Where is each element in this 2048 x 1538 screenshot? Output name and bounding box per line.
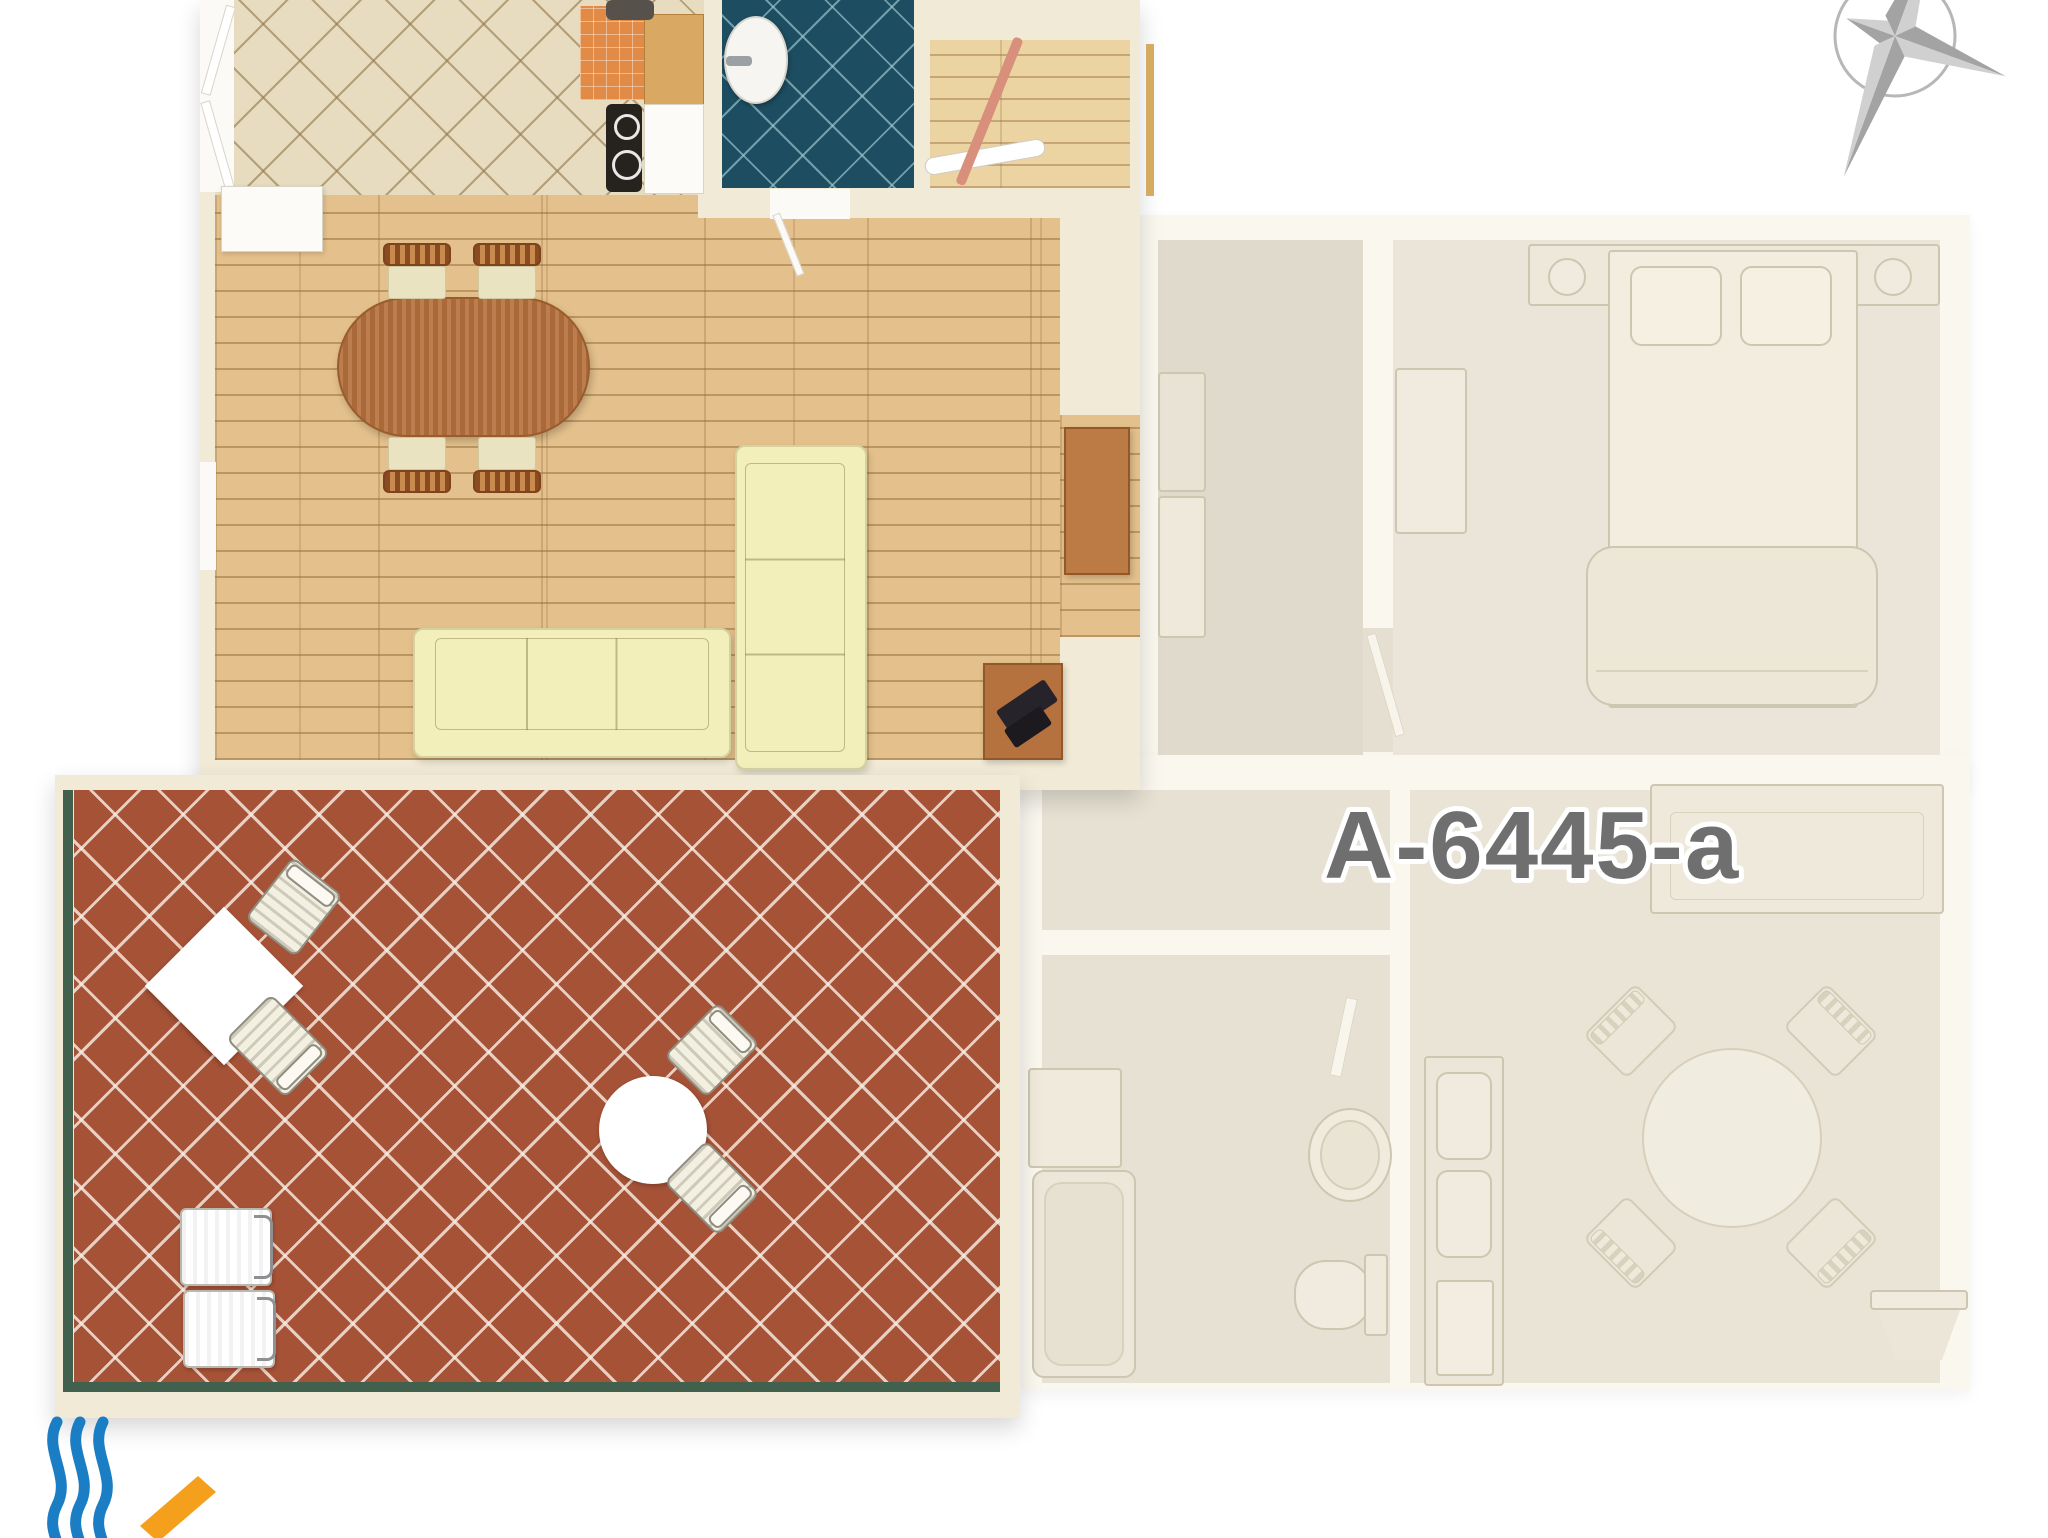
open-door-edge — [1146, 44, 1154, 196]
floor-plan: A-6445-a — [0, 0, 2048, 1538]
burner — [614, 114, 640, 140]
bedside-lamp — [1874, 258, 1912, 296]
faucet — [726, 56, 752, 66]
plant-stand-base — [1878, 1310, 1960, 1360]
bedside-lamp — [1548, 258, 1586, 296]
duvet-fold-line — [1596, 670, 1868, 672]
kitchenette-sink — [1436, 1072, 1492, 1160]
bathroom-door-opening — [770, 189, 850, 219]
stacked-chair — [183, 1290, 275, 1368]
kitchen-counter-wood — [644, 14, 704, 110]
sofa-horizontal — [413, 628, 731, 758]
faded-round-table — [1642, 1048, 1822, 1228]
unit-label: A-6445-a — [1318, 786, 1798, 910]
dining-chair — [383, 243, 451, 299]
orange-stripe-icon — [140, 1476, 216, 1538]
fridge — [221, 186, 323, 252]
chair-seat — [478, 437, 536, 470]
wardrobe — [1395, 368, 1467, 534]
sideboard — [1064, 427, 1130, 575]
dining-table — [337, 297, 590, 437]
duvet — [1586, 546, 1878, 706]
toilet-tank — [1364, 1254, 1388, 1336]
chair-seat — [388, 266, 446, 299]
kitchen-sink-unit — [606, 0, 654, 20]
dining-chair — [473, 437, 541, 493]
kitchen-counter-tiles — [580, 6, 646, 100]
sofa-cushions — [745, 463, 845, 752]
kitchenette-appliance — [1436, 1280, 1494, 1376]
burner — [612, 150, 642, 180]
chair-back — [473, 243, 541, 266]
chair-seat — [388, 437, 446, 470]
sofa-vertical — [735, 445, 867, 770]
bathtub — [1032, 1170, 1136, 1378]
sofa-cushions — [435, 638, 709, 730]
washing-machine — [1028, 1068, 1122, 1168]
kitchen-counter-white — [644, 104, 704, 194]
dining-chair — [473, 243, 541, 299]
pillow — [1740, 266, 1832, 346]
bathroom-wall — [698, 188, 1140, 218]
chair-frame — [254, 1215, 273, 1279]
sink-basin — [1320, 1120, 1380, 1190]
compass-rose-icon — [1760, 0, 2048, 194]
bathtub-basin — [1044, 1182, 1124, 1366]
chair-back — [383, 243, 451, 266]
unit-b-cabinet — [1158, 496, 1206, 638]
plant-stand-top — [1870, 1290, 1968, 1310]
chair-frame — [257, 1297, 276, 1361]
plant-stand — [1870, 1290, 1968, 1362]
dining-chair — [383, 437, 451, 493]
cooktop — [606, 104, 642, 192]
toilet — [1294, 1260, 1372, 1330]
chair-seat — [478, 266, 536, 299]
kitchenette-hob — [1436, 1170, 1492, 1258]
pillow — [1630, 266, 1722, 346]
terrace-railing-bottom — [63, 1382, 1000, 1392]
sink — [1308, 1108, 1392, 1202]
chair-back — [473, 470, 541, 493]
terrace-railing-left — [63, 790, 73, 1390]
unit-label-text: A-6445-a — [1324, 792, 1740, 899]
chair-back — [383, 470, 451, 493]
side-door-opening — [200, 462, 216, 570]
unit-b-cabinet — [1158, 372, 1206, 492]
stacked-chair — [180, 1208, 272, 1286]
water-waves-icon — [28, 1412, 268, 1538]
